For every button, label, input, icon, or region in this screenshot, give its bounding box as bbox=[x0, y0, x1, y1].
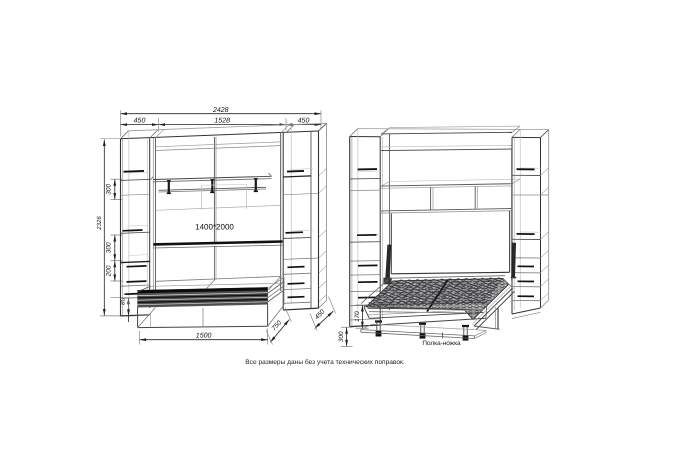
svg-text:200: 200 bbox=[106, 265, 113, 277]
svg-text:1528: 1528 bbox=[214, 118, 230, 125]
svg-text:300: 300 bbox=[106, 183, 113, 194]
svg-text:750: 750 bbox=[271, 319, 284, 332]
svg-text:2428: 2428 bbox=[212, 107, 229, 114]
svg-text:300: 300 bbox=[338, 331, 345, 342]
svg-text:Полка-ножка: Полка-ножка bbox=[422, 340, 461, 347]
svg-text:1400*2000: 1400*2000 bbox=[195, 222, 234, 231]
svg-text:1500: 1500 bbox=[196, 332, 212, 339]
svg-text:300: 300 bbox=[106, 242, 113, 253]
svg-text:450: 450 bbox=[134, 118, 146, 125]
svg-text:Все размеры даны без учета тех: Все размеры даны без учета технических п… bbox=[245, 359, 405, 366]
svg-text:450: 450 bbox=[298, 118, 310, 125]
svg-text:2326: 2326 bbox=[96, 216, 103, 231]
svg-text:170: 170 bbox=[354, 311, 361, 322]
